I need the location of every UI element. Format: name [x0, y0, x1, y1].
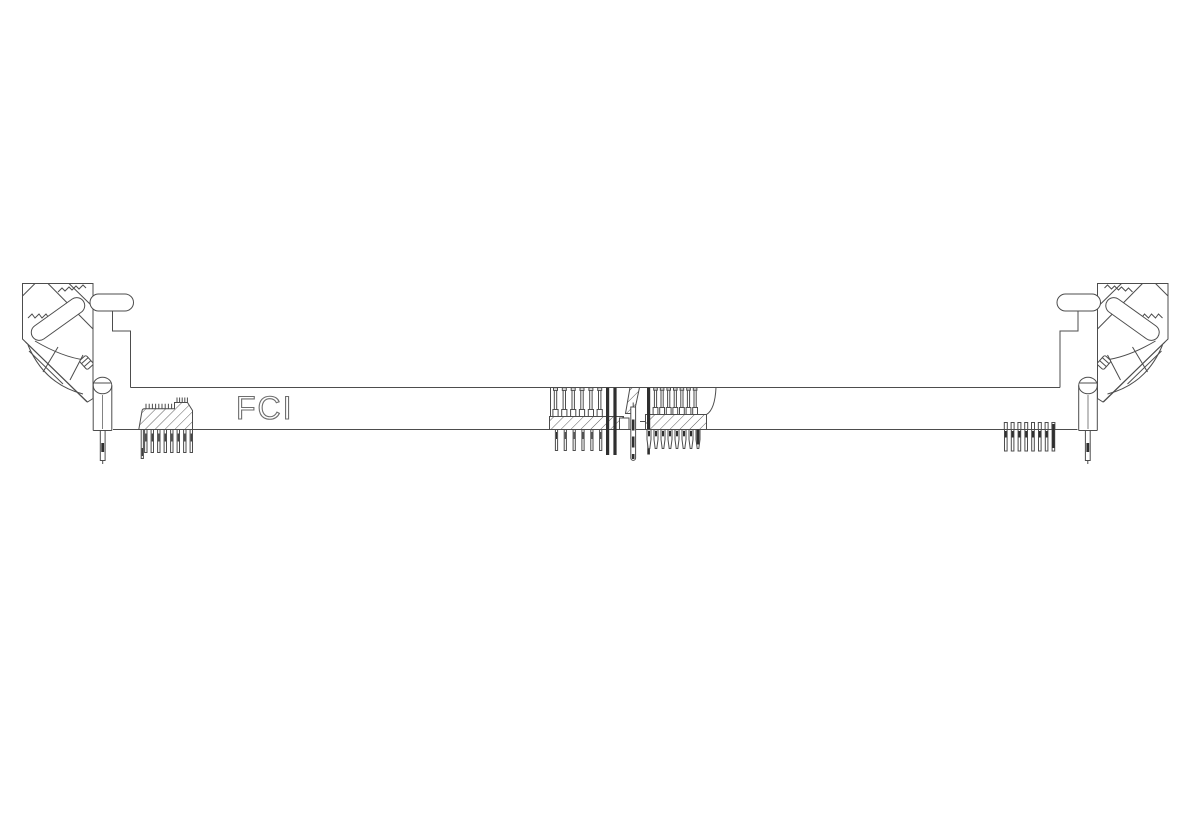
left-pin-header: [139, 398, 193, 459]
left-contact-base: [550, 417, 624, 430]
right-pin-row: [1004, 423, 1055, 452]
center-contact-cutaway: [550, 388, 717, 461]
right-contact-base: [646, 415, 707, 430]
right-ejector-end: [1057, 284, 1168, 465]
left-header-pins: [141, 430, 192, 459]
brand-logo-text: FCI: [236, 390, 294, 426]
left-contact-pins: [555, 430, 601, 451]
right-contact-pins: [647, 430, 700, 449]
left-ejector-end: [23, 284, 134, 465]
drawing-canvas: FCI: [0, 0, 1200, 813]
center-guide-pin: [631, 403, 636, 461]
connector-technical-drawing: FCI: [0, 0, 1200, 813]
